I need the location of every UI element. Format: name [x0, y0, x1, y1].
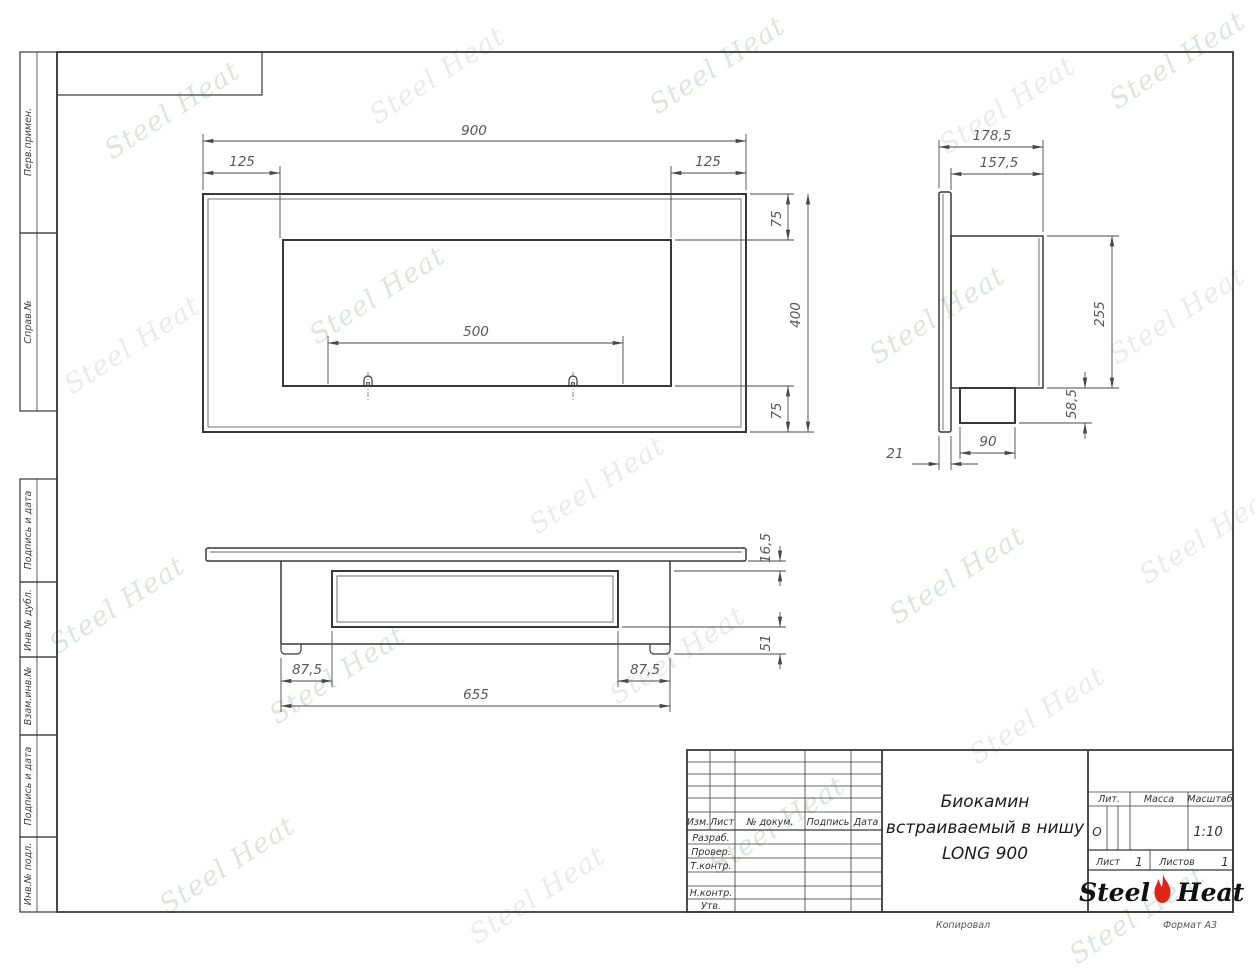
masshtab-label: Масштаб — [1187, 794, 1232, 805]
bottom-front-plate — [206, 548, 746, 561]
dim-bottom-inset-left: 87,5 — [292, 662, 322, 678]
col-list: Лист — [709, 817, 735, 828]
dim-front-slot: 500 — [463, 324, 489, 340]
dim-side-depth-total: 178,5 — [973, 128, 1012, 144]
dim-side-depth-box: 157,5 — [980, 155, 1019, 171]
brand-steel-text: Steel — [1079, 878, 1150, 907]
scale-value: 1:10 — [1193, 825, 1222, 840]
margin-label-sprav-no: Справ.№ — [23, 300, 34, 343]
front-view: 900 125 125 500 75 75 400 — [203, 123, 814, 432]
front-outer-panel — [203, 194, 746, 432]
bottom-burner-opening — [332, 571, 618, 627]
dim-bottom-length: 655 — [463, 687, 489, 703]
margin-label-podpis-data-1: Подпись и дата — [23, 490, 34, 569]
dim-side-tray-height: 58,5 — [1064, 389, 1080, 419]
col-data: Дата — [853, 817, 879, 828]
margin-label-inv-podl: Инв.№ подл. — [23, 843, 34, 906]
flame-icon — [1155, 874, 1171, 903]
drawing-canvas: Перв.примен. Справ.№ Подпись и дата Инв.… — [0, 0, 1255, 970]
product-name-line2: встраиваемый в нишу — [886, 818, 1085, 838]
dim-side-flange: 21 — [886, 446, 903, 462]
dim-front-left-inset: 125 — [229, 154, 255, 170]
margin-label-inv-dubl: Инв.№ дубл. — [23, 589, 34, 651]
front-window-opening — [283, 240, 671, 386]
sheet-frame — [57, 52, 1233, 912]
row-utv: Утв. — [701, 901, 721, 912]
title-block: Изм. Лист № докум. Подпись Дата Разраб. … — [687, 750, 1245, 912]
dim-front-top-inset: 75 — [769, 210, 785, 227]
brand-logo: Steel Heat — [1079, 874, 1245, 907]
massa-label: Масса — [1144, 794, 1174, 805]
left-margin-column: Перв.примен. Справ.№ Подпись и дата Инв.… — [20, 52, 57, 912]
kopiroval-note: Копировал — [936, 920, 990, 931]
dim-side-tray-width: 90 — [979, 434, 996, 450]
margin-label-perv-primen: Перв.примен. — [23, 108, 34, 176]
margin-label-podpis-data-2: Подпись и дата — [23, 746, 34, 825]
listov-value: 1 — [1221, 855, 1229, 869]
bottom-foot-right — [650, 644, 670, 654]
col-izm: Изм. — [687, 817, 709, 828]
top-left-stamp — [57, 52, 262, 95]
dim-side-box-height: 255 — [1092, 301, 1108, 327]
lit-label: Лит. — [1097, 794, 1120, 805]
row-razrab: Разраб. — [692, 833, 729, 844]
row-prover: Провер. — [691, 847, 730, 858]
row-tkontr: Т.контр. — [690, 861, 731, 872]
dim-front-bottom-inset: 75 — [769, 402, 785, 419]
list-label: Лист — [1095, 857, 1121, 868]
dim-front-width: 900 — [461, 123, 487, 139]
listov-label: Листов — [1158, 857, 1195, 868]
list-value: 1 — [1135, 855, 1143, 869]
lit-value: О — [1092, 825, 1101, 839]
brand-heat-text: Heat — [1176, 878, 1245, 907]
dim-bottom-inset-right: 87,5 — [630, 662, 660, 678]
dim-front-right-inset: 125 — [695, 154, 721, 170]
side-burner-tray — [960, 388, 1015, 423]
drawing-sheet: Steel Heat Steel Heat Steel Heat Steel H… — [0, 0, 1255, 970]
product-name-line1: Биокамин — [941, 792, 1030, 812]
side-front-flange — [939, 192, 951, 432]
bottom-foot-left — [281, 644, 301, 654]
bottom-view: 16,5 51 87,5 87,5 655 — [206, 533, 786, 712]
row-nkontr: Н.контр. — [690, 888, 733, 899]
col-podpis: Подпись — [807, 817, 850, 828]
col-doc: № докум. — [746, 817, 794, 828]
dim-bottom-plate: 16,5 — [758, 533, 774, 563]
side-body-box — [951, 236, 1043, 388]
side-view: 178,5 157,5 255 58,5 90 21 — [886, 128, 1119, 470]
dim-front-height: 400 — [788, 302, 804, 328]
format-note: Формат А3 — [1163, 920, 1217, 931]
product-name-line3: LONG 900 — [942, 844, 1028, 864]
dim-bottom-foot: 51 — [758, 634, 774, 651]
margin-label-vzam-inv: Взам.инв.№ — [23, 667, 34, 726]
